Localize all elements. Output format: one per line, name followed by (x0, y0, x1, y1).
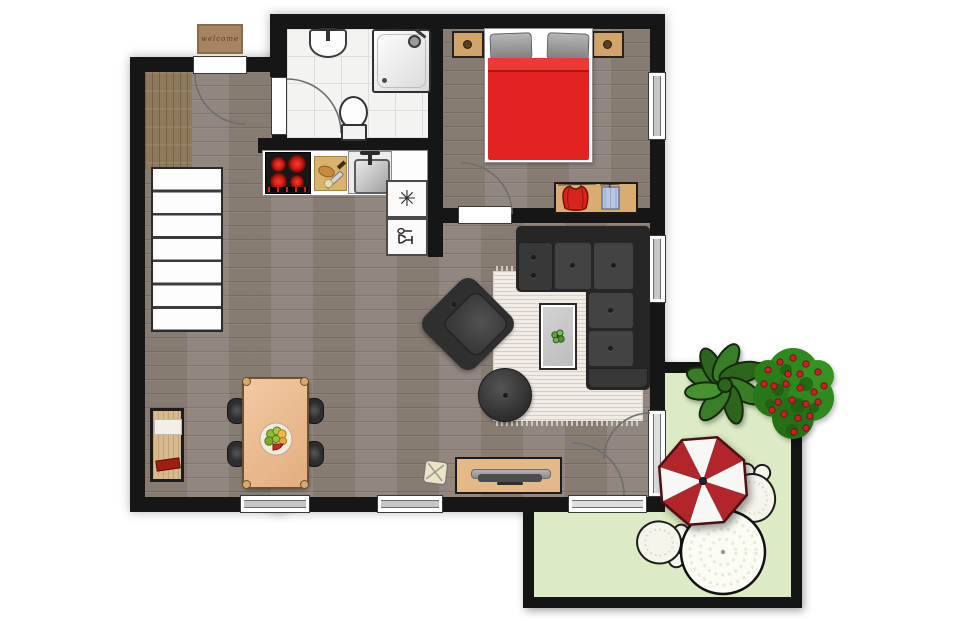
nightstand-knob (603, 40, 612, 49)
sofa-button (608, 346, 613, 351)
bed-blanket (488, 58, 589, 160)
cutting-board (314, 156, 347, 191)
pillow-left (490, 32, 533, 60)
chair-pad (308, 403, 320, 419)
closet-shelf (154, 419, 182, 435)
wardrobe-clothes (556, 184, 635, 211)
flowering-bush (748, 344, 840, 450)
ottoman (478, 368, 532, 422)
wardrobe (554, 182, 638, 214)
stove-controls (268, 187, 308, 192)
shower-head (408, 35, 421, 48)
ottoman-button (503, 393, 508, 398)
sink-basin (354, 159, 390, 194)
washbasin (309, 29, 347, 58)
sofa-armrest-left (518, 242, 553, 291)
sofa-button (531, 255, 536, 260)
coffee-table-plant (547, 326, 569, 348)
fruit-plate (257, 420, 295, 458)
knife-handle (337, 161, 346, 170)
shower (372, 29, 431, 93)
table-corner-knob (242, 377, 251, 386)
burner (271, 157, 286, 172)
blanket-fold (488, 58, 589, 72)
basin-faucet-bar (319, 28, 337, 31)
stove (265, 152, 311, 194)
burner (288, 155, 306, 173)
freezer: ✳ (386, 180, 428, 218)
sofa-button (611, 263, 616, 268)
tv-sideboard (455, 457, 562, 494)
sofa-armrest-bottom (588, 368, 648, 388)
table-corner-knob (300, 377, 309, 386)
dishwasher (386, 218, 428, 256)
nightstand-right (592, 31, 624, 58)
nightstand-left (452, 31, 484, 58)
doormat: welcome (197, 24, 243, 54)
sofa-button (531, 273, 536, 278)
tv-stand (497, 482, 523, 485)
closet-red-mat (155, 457, 180, 471)
pouf (423, 460, 449, 486)
table-corner-knob (242, 480, 251, 489)
pouf-stitch-x (424, 461, 446, 483)
pillow-right (547, 32, 590, 60)
staircase (151, 167, 223, 332)
chair-pad (308, 446, 320, 462)
toilet-tank (341, 124, 367, 141)
garlic (324, 179, 333, 188)
parasol (653, 431, 753, 531)
sink-faucet-stem (368, 154, 372, 165)
sofa-button (608, 308, 613, 313)
doormat-text: welcome (201, 35, 239, 43)
floor-plan-canvas: welcome ✳ (0, 0, 960, 623)
dishwasher-icon (395, 225, 419, 249)
tv-screen-front (478, 474, 542, 482)
dining-table (242, 377, 309, 489)
shower-drain (382, 78, 387, 83)
coffee-table (539, 303, 577, 370)
sofa-button (570, 263, 575, 268)
freezer-icon: ✳ (398, 188, 416, 210)
hall-closet (150, 408, 184, 482)
nightstand-knob (463, 40, 472, 49)
double-bed (484, 28, 593, 163)
table-corner-knob (300, 480, 309, 489)
